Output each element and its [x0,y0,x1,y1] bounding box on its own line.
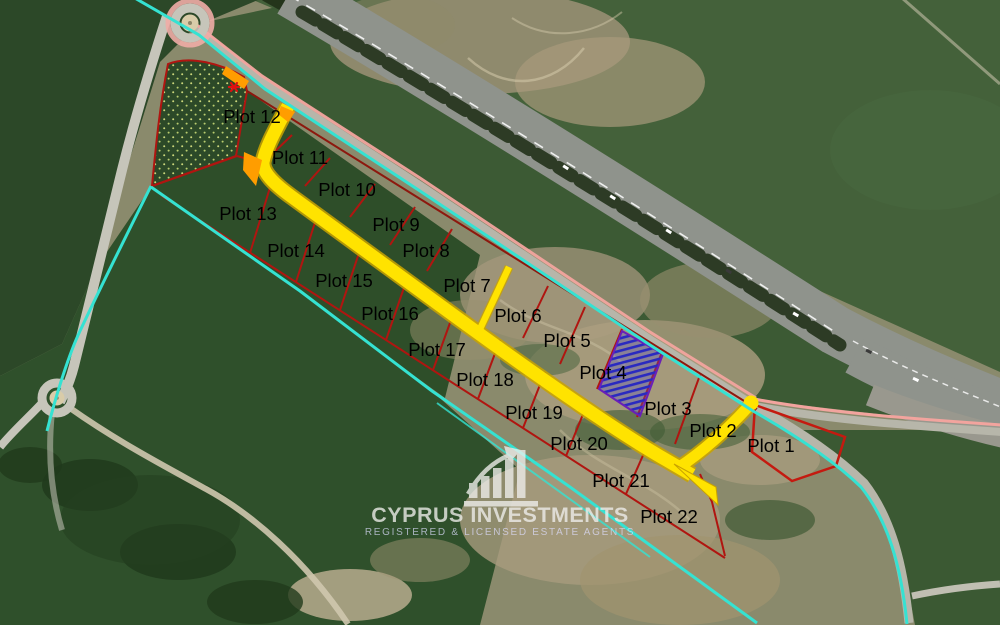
plot-label-plot-22: Plot 22 [640,506,698,527]
plot-label-plot-13: Plot 13 [219,203,277,224]
plot-label-plot-6: Plot 6 [494,305,541,326]
plot-label-plot-3: Plot 3 [644,398,691,419]
map-canvas: Plot 1Plot 2Plot 3Plot 4Plot 5Plot 6Plot… [0,0,1000,625]
watermark-subtitle: REGISTERED & LICENSED ESTATE AGENTS [365,527,635,538]
plot-label-plot-14: Plot 14 [267,240,325,261]
plot-label-plot-21: Plot 21 [592,470,650,491]
plot-label-plot-18: Plot 18 [456,369,514,390]
plot-label-plot-20: Plot 20 [550,433,608,454]
plot-label-plot-12: Plot 12 [223,106,281,127]
plot-label-plot-11: Plot 11 [272,147,328,168]
plot-label-plot-9: Plot 9 [372,214,419,235]
plot-label-plot-5: Plot 5 [543,330,590,351]
satellite-plot-map: Plot 1Plot 2Plot 3Plot 4Plot 5Plot 6Plot… [0,0,1000,625]
plot-label-plot-7: Plot 7 [443,275,490,296]
plot-label-plot-16: Plot 16 [361,303,419,324]
plot-label-plot-15: Plot 15 [315,270,373,291]
watermark-title: CYPRUS INVESTMENTS [371,503,628,527]
plot-label-plot-2: Plot 2 [689,420,736,441]
plot-label-plot-4: Plot 4 [579,362,626,383]
plot-label-plot-8: Plot 8 [402,240,449,261]
plot-label-plot-19: Plot 19 [505,402,563,423]
plot-label-plot-1: Plot 1 [747,435,794,456]
plot-label-plot-17: Plot 17 [408,339,466,360]
plot-label-plot-10: Plot 10 [318,179,376,200]
